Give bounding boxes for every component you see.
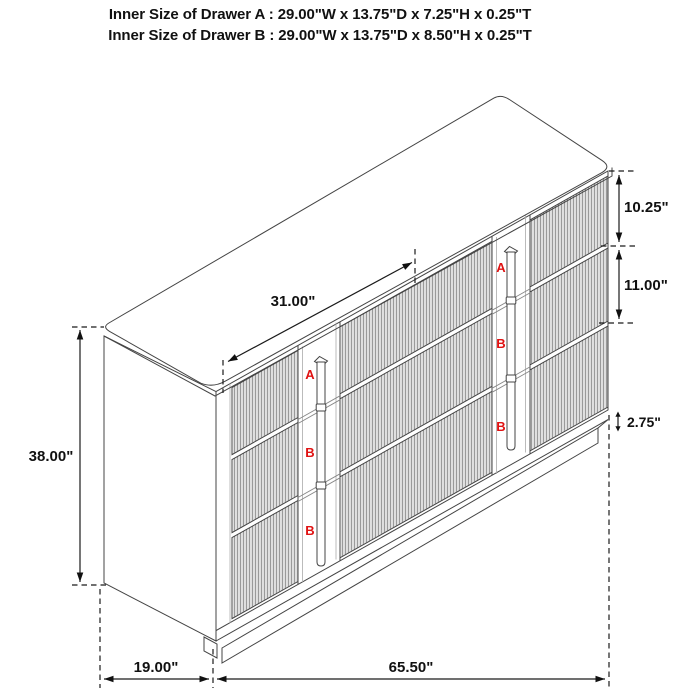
dim-total-height-label: 38.00" — [22, 448, 80, 465]
dim-top-width-label: 31.00" — [251, 293, 335, 310]
drawer-label-right-b2: B — [493, 419, 509, 434]
drawer-label-left-b1: B — [302, 445, 318, 460]
dim-depth-label: 19.00" — [114, 659, 198, 676]
sideboard-line-art — [0, 0, 700, 700]
dim-drawer-b-front-label: 11.00" — [624, 277, 668, 294]
dim-drawer-a-front-label: 10.25" — [624, 199, 669, 216]
furniture-dimension-diagram: Inner Size of Drawer A : 29.00"W x 13.75… — [0, 0, 700, 700]
drawer-label-left-a: A — [302, 367, 318, 382]
drawer-label-left-b2: B — [302, 523, 318, 538]
fluted-panel-left — [232, 351, 298, 619]
title-drawer-b: Inner Size of Drawer B : 29.00"W x 13.75… — [0, 27, 640, 44]
dim-base-height-label: 2.75" — [627, 414, 661, 430]
sideboard — [104, 96, 612, 663]
fluted-panel-right — [530, 176, 608, 451]
dim-arrow-base-height — [615, 412, 620, 432]
drawer-label-right-b1: B — [493, 336, 509, 351]
drawer-label-right-a: A — [493, 260, 509, 275]
dim-total-width-label: 65.50" — [369, 659, 453, 676]
title-drawer-a: Inner Size of Drawer A : 29.00"W x 13.75… — [0, 6, 640, 23]
